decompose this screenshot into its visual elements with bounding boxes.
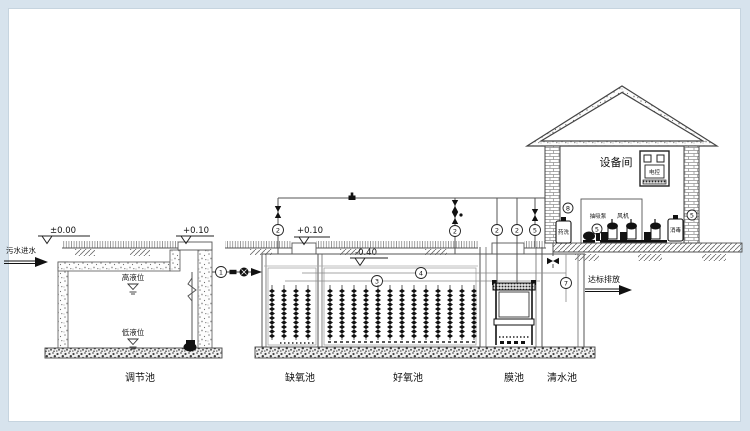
callout-8: 8 — [566, 204, 570, 212]
disinfect-tank-label: 消毒 — [670, 226, 682, 234]
process-drawing-canvas: 高液位 低液位 调节池 污水进水 ±0.00 +0.10 — [0, 0, 750, 431]
main-tank-block: +0.10 -0.40 — [225, 226, 595, 384]
callout-2a: 2 — [276, 226, 280, 234]
regulation-tank: 高液位 低液位 调节池 — [45, 242, 222, 384]
valve-icon — [452, 200, 458, 212]
callout-2c: 2 — [495, 226, 499, 234]
overhead-piping: 2 2 2 2 5 — [273, 193, 560, 284]
callout-5c: 5 — [690, 211, 694, 219]
callout-1: 1 — [219, 268, 223, 276]
clearwater-tank-label: 清水池 — [547, 371, 577, 384]
transfer-pipe: 1 — [212, 267, 262, 278]
elevation-mark-icon — [42, 236, 52, 244]
chem-wash-tank-label: 药洗 — [558, 228, 570, 236]
outlet-arrow-icon — [619, 285, 632, 295]
valve-icon — [275, 206, 281, 218]
suction-pump-icon — [583, 232, 600, 243]
treatment-process-diagram: 高液位 低液位 调节池 污水进水 ±0.00 +0.10 — [0, 0, 750, 431]
aerobic-media-chains — [327, 285, 477, 342]
ground-left — [62, 241, 178, 256]
control-panel: 电控 — [640, 151, 669, 186]
valve-icon — [452, 212, 458, 224]
brick-column-right — [684, 146, 699, 243]
inlet-flow: 污水进水 — [4, 245, 48, 267]
blower-label: 风机 — [617, 212, 629, 220]
valve-icon — [547, 258, 559, 264]
anoxic-media-chains — [269, 285, 314, 343]
floor-slab — [553, 243, 742, 252]
aerobic-tank-label: 好氧池 — [393, 371, 423, 384]
water-level-icon — [128, 339, 138, 349]
inlet-label: 污水进水 — [6, 245, 36, 255]
callout-5a: 5 — [533, 226, 537, 234]
elev-zero-label: ±0.00 — [50, 226, 76, 236]
callout-4: 4 — [419, 269, 423, 277]
elev-n040-label: -0.40 — [355, 248, 377, 258]
elev-p010-label: +0.10 — [297, 226, 323, 236]
flow-arrow-icon — [251, 268, 262, 276]
anoxic-tank-label: 缺氧池 — [285, 371, 315, 384]
elev-p010-label: +0.10 — [183, 226, 209, 236]
high-level-label: 高液位 — [122, 272, 145, 282]
water-level-icon — [128, 284, 138, 294]
inlet-arrow-icon — [35, 257, 48, 267]
tee-fitting-icon — [349, 196, 356, 201]
callout-5b: 5 — [595, 225, 599, 233]
elevation-p010-left: +0.10 — [176, 226, 214, 244]
submersible-pump-icon — [184, 343, 197, 352]
membrane-tank-label: 膜池 — [504, 371, 524, 384]
callout-3: 3 — [375, 277, 379, 285]
regulation-tank-label: 调节池 — [125, 371, 155, 384]
equipment-room-label: 设备间 — [600, 155, 633, 169]
valve-icon — [532, 209, 538, 221]
curb-block — [178, 242, 212, 250]
callout-7: 7 — [564, 279, 568, 287]
elevation-mark-icon — [355, 258, 365, 266]
callout-2d: 2 — [515, 226, 519, 234]
roof — [527, 86, 717, 146]
low-level-label: 低液位 — [122, 327, 145, 337]
suction-pump-label: 抽吸泵 — [590, 212, 607, 220]
outlet-label: 达标排放 — [588, 274, 620, 284]
control-panel-label: 电控 — [649, 168, 661, 176]
blower-icon — [643, 219, 667, 243]
membrane-module — [492, 280, 536, 345]
equipment-house: 设备间 电控 药洗 8 抽吸泵 风机 — [527, 86, 742, 261]
outlet-flow: 达标排放 — [585, 274, 632, 295]
elevation-n040: -0.40 — [350, 248, 388, 266]
blower-icon — [619, 219, 643, 243]
inline-valve-icon — [230, 270, 237, 274]
elevation-zero: ±0.00 — [38, 226, 90, 244]
callout-2b: 2 — [453, 227, 457, 235]
